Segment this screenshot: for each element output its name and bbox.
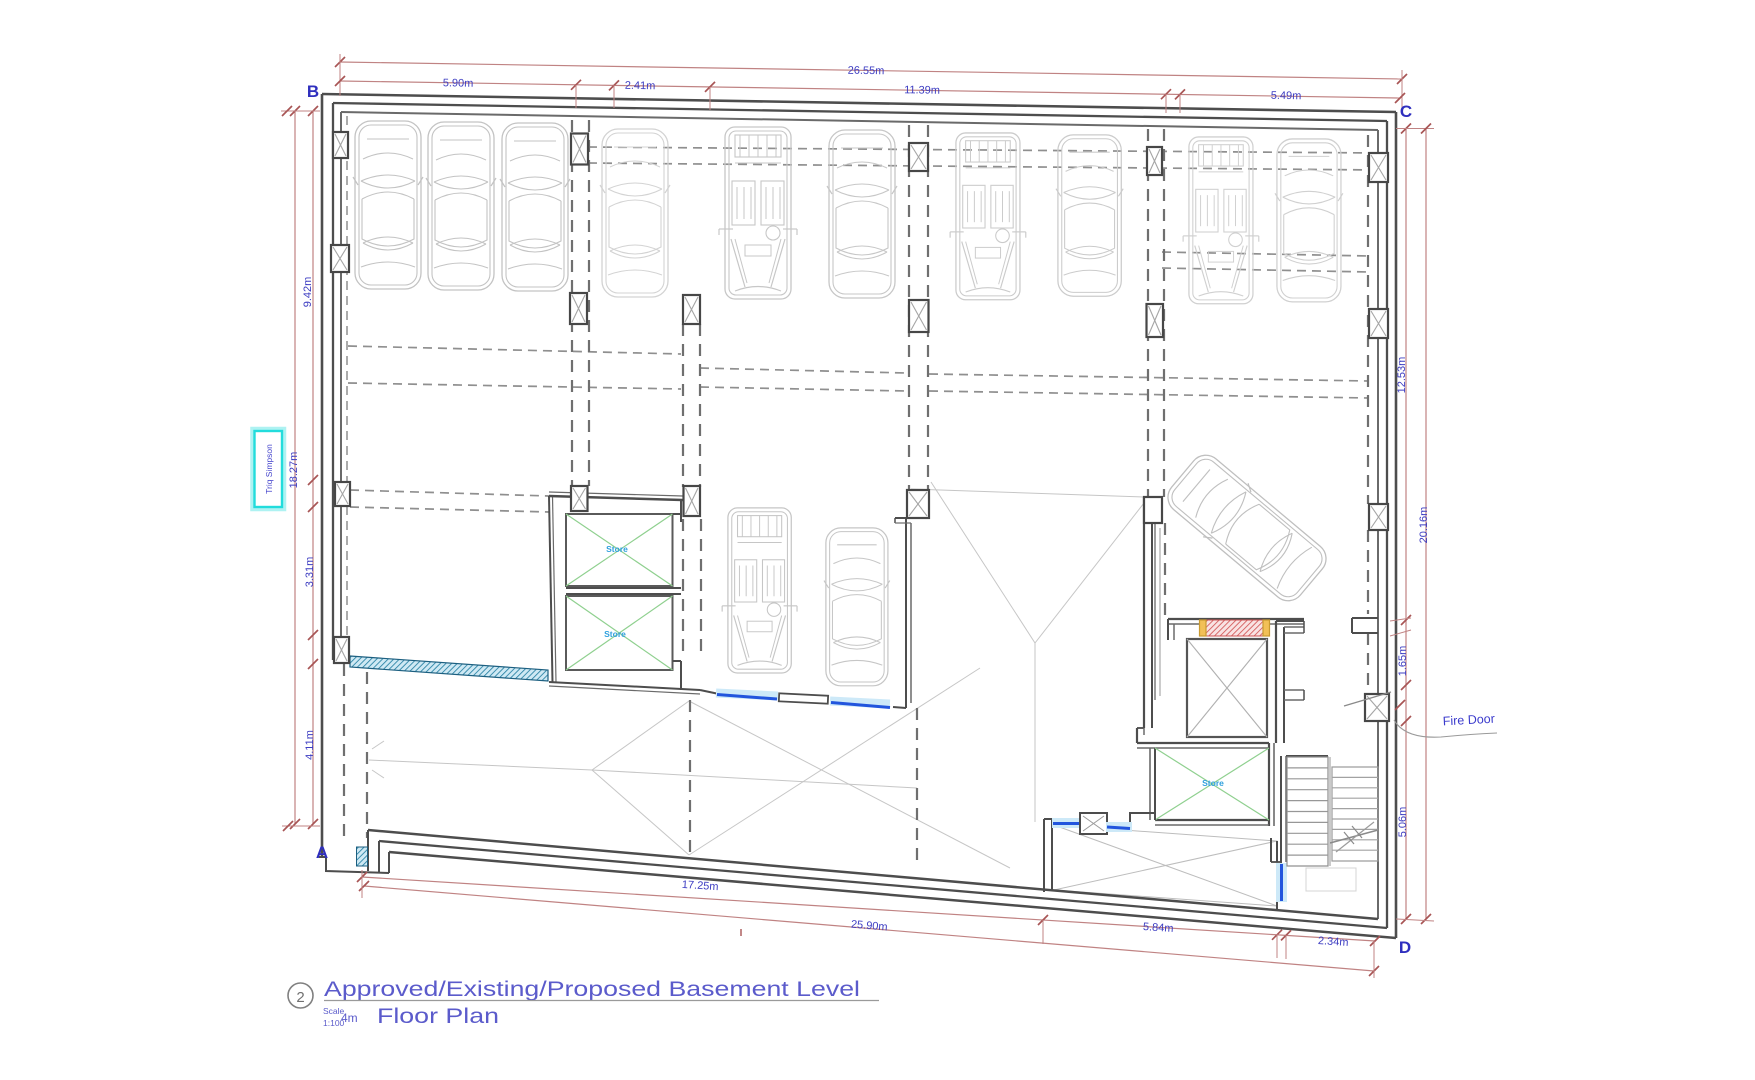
svg-text:B: B xyxy=(307,82,319,101)
svg-text:3.31m: 3.31m xyxy=(304,557,316,588)
svg-text:9.42m: 9.42m xyxy=(302,277,314,308)
svg-text:5.49m: 5.49m xyxy=(1271,90,1302,102)
svg-text:2: 2 xyxy=(296,989,304,1006)
svg-text:26.55m: 26.55m xyxy=(848,65,885,78)
svg-text:A: A xyxy=(316,843,328,862)
svg-text:Store: Store xyxy=(1202,778,1224,788)
svg-text:Fire Door: Fire Door xyxy=(1442,712,1495,729)
svg-text:2.41m: 2.41m xyxy=(625,80,656,92)
svg-text:12.53m: 12.53m xyxy=(1396,357,1408,394)
svg-text:11.39m: 11.39m xyxy=(904,84,940,97)
svg-text:4.11m: 4.11m xyxy=(304,730,316,760)
svg-text:C: C xyxy=(1400,102,1412,121)
svg-text:18.27m: 18.27m xyxy=(288,452,300,489)
svg-text:Store: Store xyxy=(604,629,626,639)
svg-text:1.65m: 1.65m xyxy=(1397,646,1409,677)
svg-text:Store: Store xyxy=(606,544,628,554)
svg-text:2.34m: 2.34m xyxy=(1318,935,1349,949)
svg-text:D: D xyxy=(1399,938,1411,957)
svg-text:5.90m: 5.90m xyxy=(443,77,474,89)
svg-text:5.06m: 5.06m xyxy=(1397,807,1409,838)
svg-text:5.84m: 5.84m xyxy=(1143,921,1174,935)
svg-text:20.16m: 20.16m xyxy=(1418,507,1430,544)
svg-text:Approved/Existing/Proposed Bas: Approved/Existing/Proposed Basement Leve… xyxy=(324,977,860,1001)
svg-text:17.25m: 17.25m xyxy=(681,879,718,893)
svg-text:4m: 4m xyxy=(341,1011,358,1025)
svg-text:Floor Plan: Floor Plan xyxy=(377,1004,499,1028)
svg-text:Triq Simpson: Triq Simpson xyxy=(264,444,274,494)
